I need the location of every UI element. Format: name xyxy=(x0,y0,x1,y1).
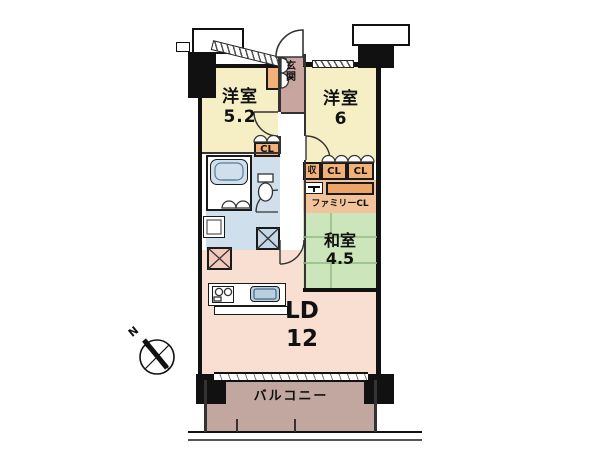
bath-folding-door-arcs xyxy=(222,201,250,208)
toilet-fixture xyxy=(258,174,273,201)
washing-machine-cross xyxy=(257,228,279,249)
hall-closet-b-label: CL xyxy=(347,166,374,178)
corridor-door-arc xyxy=(280,240,304,264)
living-dining-label: LD 12 xyxy=(272,298,332,353)
family-closet-label: ファミリーCL xyxy=(303,199,377,209)
japanese-room-size: 4.5 xyxy=(326,249,354,268)
living-dining-size: 12 xyxy=(286,326,318,352)
entrance-label: 玄関 xyxy=(284,62,298,83)
bedroom1-size: 5.2 xyxy=(223,107,256,127)
bathtub-detail xyxy=(215,163,243,180)
bedroom1-name: 洋室 xyxy=(222,87,258,107)
storage-label: 収 xyxy=(303,166,321,176)
family-closet-hook-icon xyxy=(308,187,320,192)
bedroom2-label: 洋室 6 xyxy=(306,90,376,129)
stove-burners xyxy=(214,288,232,301)
compass-icon xyxy=(140,340,174,374)
bedroom1-closet-bifold-arcs xyxy=(254,136,280,142)
living-dining-name: LD xyxy=(285,298,319,324)
refrigerator-cross xyxy=(208,248,231,269)
hall-closet-a-label: CL xyxy=(321,166,347,178)
balcony-label: バルコニー xyxy=(206,390,376,405)
floor-plan-canvas: 洋室 5.2 洋室 6 玄関 CL 収 CL CL ファミリーCL 和室 4.5… xyxy=(0,0,600,464)
bedroom1-label: 洋室 5.2 xyxy=(202,88,278,127)
bedroom2-size: 6 xyxy=(335,109,348,129)
bedroom1-closet-label: CL xyxy=(254,144,280,156)
entrance-door-arc xyxy=(276,30,303,57)
bedroom2-name: 洋室 xyxy=(323,89,359,109)
japanese-room-label: 和室 4.5 xyxy=(303,232,377,269)
vanity-bowl xyxy=(207,220,221,234)
hall-closet-bifold-arcs xyxy=(322,156,374,162)
japanese-room-name: 和室 xyxy=(324,231,356,250)
